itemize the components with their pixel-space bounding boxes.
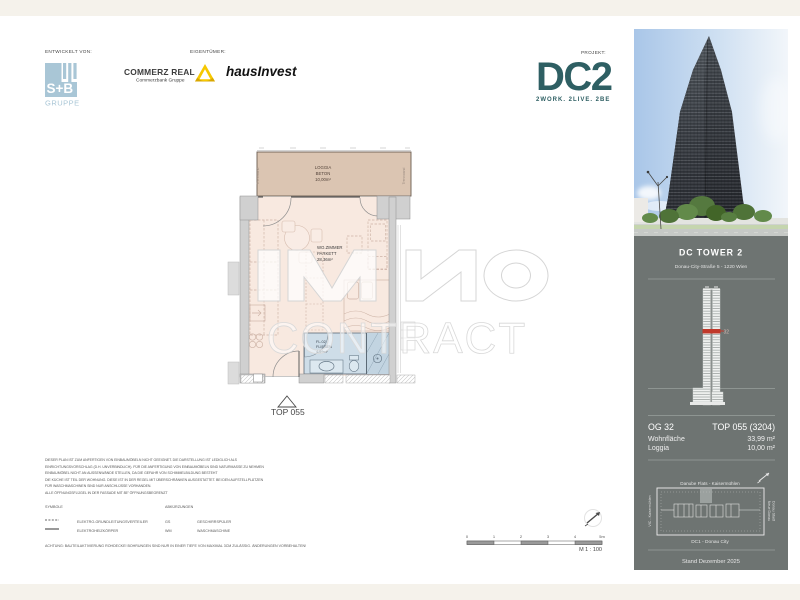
svg-text:GRUPPE: GRUPPE xyxy=(45,99,80,108)
svg-text:Loggia: Loggia xyxy=(648,445,669,452)
svg-text:Trennwand: Trennwand xyxy=(402,167,406,184)
svg-text:33,99 m²: 33,99 m² xyxy=(747,436,775,443)
svg-text:Donau Stadt: Donau Stadt xyxy=(772,501,776,521)
svg-text:5m: 5m xyxy=(599,534,605,539)
svg-text:DC TOWER 2: DC TOWER 2 xyxy=(679,248,743,258)
svg-text:Trennwand: Trennwand xyxy=(256,167,260,184)
svg-text:COMMERZ REAL: COMMERZ REAL xyxy=(124,67,195,77)
svg-text:10,00m²: 10,00m² xyxy=(315,177,331,182)
svg-text:M 1 : 100: M 1 : 100 xyxy=(579,547,602,553)
svg-text:S+B: S+B xyxy=(47,81,74,96)
svg-text:BETON: BETON xyxy=(316,171,331,176)
svg-text:3: 3 xyxy=(547,534,550,539)
svg-text:Wohnfläche: Wohnfläche xyxy=(648,436,685,443)
svg-text:Danube Flats - Kaisermühlen: Danube Flats - Kaisermühlen xyxy=(680,481,740,486)
svg-text:2: 2 xyxy=(520,534,523,539)
svg-text:OG 32: OG 32 xyxy=(648,422,674,432)
svg-text:DC1 - Donau City: DC1 - Donau City xyxy=(691,539,729,545)
svg-text:4: 4 xyxy=(574,534,577,539)
svg-text:VIC - Kaisermühlen: VIC - Kaisermühlen xyxy=(648,495,652,526)
svg-text:CONTRACT: CONTRACT xyxy=(267,314,527,363)
svg-text:Neue Donau: Neue Donau xyxy=(767,501,771,521)
svg-text:PARKETT: PARKETT xyxy=(317,251,337,256)
svg-text:Donau-City-Straße 5 - 1220 Wie: Donau-City-Straße 5 - 1220 Wien xyxy=(675,264,748,270)
svg-text:WO.ZIMMER: WO.ZIMMER xyxy=(317,245,343,250)
svg-text:Commerzbank Gruppe: Commerzbank Gruppe xyxy=(136,78,185,84)
svg-text:10,00 m²: 10,00 m² xyxy=(747,445,775,452)
svg-text:TOP 055 (3204): TOP 055 (3204) xyxy=(712,422,775,432)
svg-text:32: 32 xyxy=(724,330,730,336)
svg-text:28,36m²: 28,36m² xyxy=(317,257,333,262)
svg-text:TOP 055: TOP 055 xyxy=(271,407,305,417)
svg-text:1: 1 xyxy=(493,534,496,539)
svg-text:Stand Dezember 2025: Stand Dezember 2025 xyxy=(682,559,740,565)
svg-text:LOGGIA: LOGGIA xyxy=(315,165,332,170)
svg-text:0: 0 xyxy=(466,534,469,539)
